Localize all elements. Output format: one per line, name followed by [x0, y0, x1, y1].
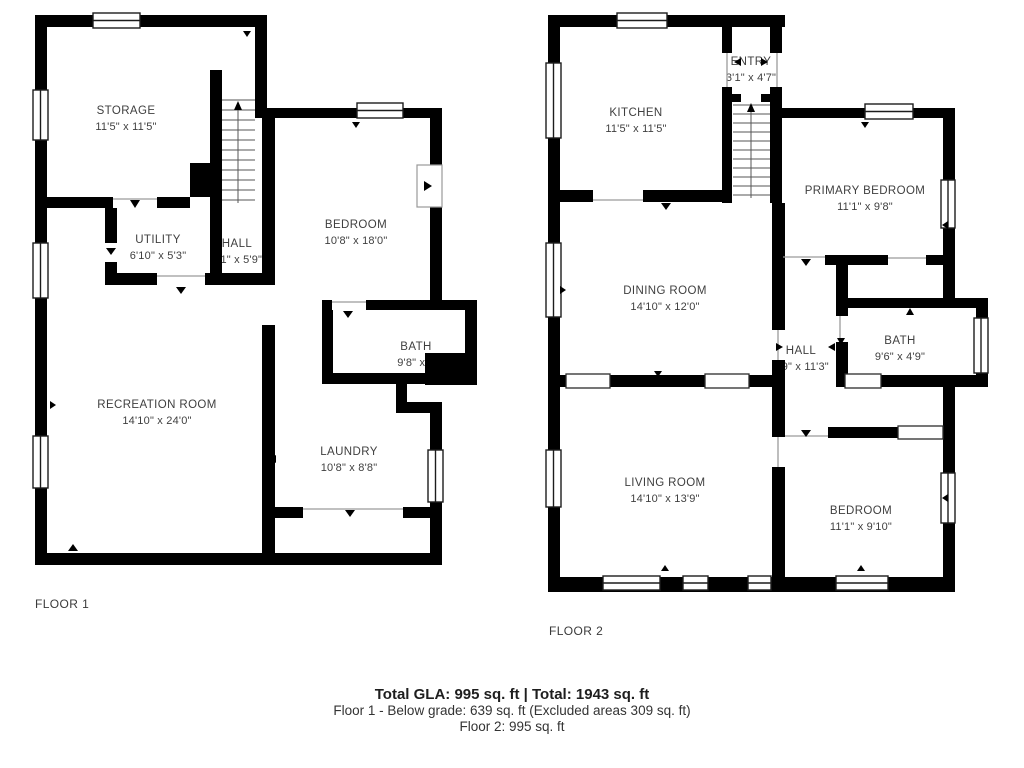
- floor2-tag: FLOOR 2: [549, 624, 603, 638]
- room-label-living: LIVING ROOM 14'10" x 13'9": [624, 475, 705, 507]
- total-gla-line: Total GLA: 995 sq. ft | Total: 1943 sq. …: [0, 686, 1024, 703]
- room-label-bath-f1: BATH 9'8" x 7: [397, 339, 435, 371]
- room-label-bath-f2: BATH 9'6" x 4'9": [875, 333, 925, 365]
- room-label-bedroom-f2: BEDROOM 11'1" x 9'10": [830, 503, 892, 535]
- room-label-bedroom-f1: BEDROOM 10'8" x 18'0": [325, 217, 388, 249]
- room-label-entry: ENTRY 3'1" x 4'7": [726, 54, 776, 86]
- floor1-tag: FLOOR 1: [35, 597, 89, 611]
- room-label-utility: UTILITY 6'10" x 5'3": [130, 232, 187, 264]
- room-label-hall-f1: HALL 3'1" x 5'9": [212, 236, 262, 268]
- room-labels-layer: STORAGE 11'5" x 11'5" UTILITY 6'10" x 5'…: [0, 0, 1024, 768]
- area-summary: Total GLA: 995 sq. ft | Total: 1943 sq. …: [0, 686, 1024, 735]
- room-label-recreation: RECREATION ROOM 14'10" x 24'0": [97, 397, 217, 429]
- room-label-hall-f2: HALL 3'9" x 11'3": [773, 343, 829, 375]
- room-label-laundry: LAUNDRY 10'8" x 8'8": [320, 444, 378, 476]
- floorplan-canvas: STORAGE 11'5" x 11'5" UTILITY 6'10" x 5'…: [0, 0, 1024, 768]
- floor2-area-line: Floor 2: 995 sq. ft: [0, 719, 1024, 735]
- room-label-storage: STORAGE 11'5" x 11'5": [95, 103, 156, 135]
- room-label-primary-bedroom: PRIMARY BEDROOM 11'1" x 9'8": [805, 183, 926, 215]
- floor1-area-line: Floor 1 - Below grade: 639 sq. ft (Exclu…: [0, 703, 1024, 719]
- room-label-dining: DINING ROOM 14'10" x 12'0": [623, 283, 707, 315]
- room-label-kitchen: KITCHEN 11'5" x 11'5": [605, 105, 666, 137]
